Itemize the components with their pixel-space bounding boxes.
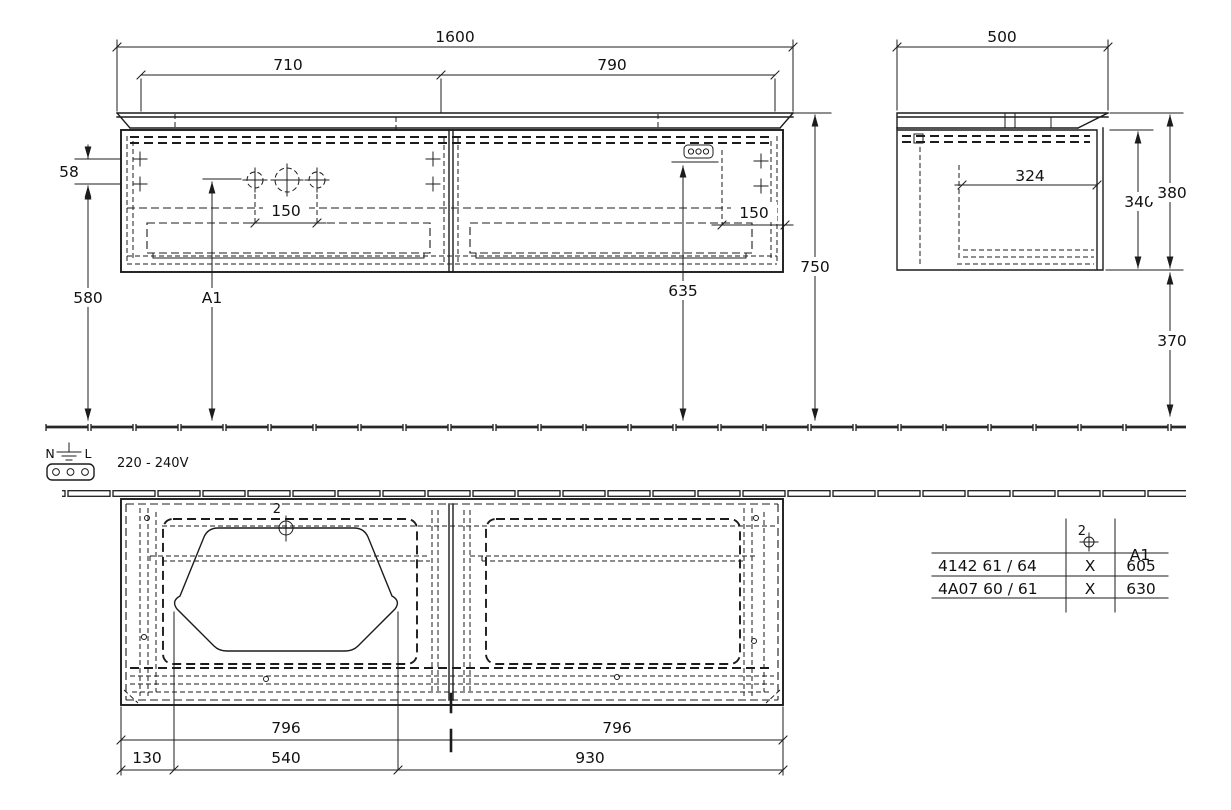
dim-hole-spacing-right: 150 — [739, 204, 769, 222]
vanity-technical-drawing: 1600 710 790 58 580 A1 635 750 15 — [0, 0, 1231, 810]
floor-line-lower — [62, 490, 1186, 497]
dim-edge-offset: 130 — [132, 749, 162, 767]
table-row: 4142 61 / 64 X 605 — [938, 557, 1156, 575]
dim-inner-depth: 324 — [1015, 167, 1045, 185]
dim-right-span: 930 — [575, 749, 605, 767]
dim-left-width: 796 — [271, 719, 301, 737]
floor-line-upper — [45, 424, 1186, 431]
side-view: 500 324 340 380 370 — [893, 28, 1194, 416]
plan-outline — [121, 499, 783, 705]
side-dimensions: 500 324 340 380 370 — [893, 28, 1194, 416]
plan-view: 2 — [121, 499, 783, 705]
socket-cutout — [684, 145, 722, 225]
plan-left-drawer — [163, 519, 417, 664]
technical-drawing-page: 1600 710 790 58 580 A1 635 750 15 — [0, 0, 1231, 810]
front-center-divider — [449, 130, 453, 272]
table-symbol-value: X — [1085, 557, 1096, 575]
plug-connector-icon — [47, 464, 94, 480]
plan-dimensions: 796 796 130 540 930 — [117, 612, 787, 775]
side-cabinet-body — [897, 128, 1103, 270]
dim-height-to-holes: 580 — [73, 289, 103, 307]
dim-floor-clearance: 370 — [1157, 332, 1187, 350]
spec-table: 2 A1 4142 61 / 64 X 605 4A07 60 / 61 X 6… — [932, 519, 1168, 612]
dim-basin-span: 540 — [271, 749, 301, 767]
electrical-connection: N L 220 - 240V — [45, 443, 188, 480]
dim-left-section: 710 — [273, 56, 303, 74]
dim-right-section: 790 — [597, 56, 627, 74]
side-countertop — [897, 113, 1108, 128]
front-left-drawer-handle — [147, 223, 430, 253]
plan-right-drawer — [486, 519, 740, 664]
earth-ground-icon — [57, 443, 81, 460]
dim-side-inset: 58 — [59, 163, 79, 181]
dim-socket-height: 635 — [668, 282, 698, 300]
label-drain: 2 — [273, 502, 281, 517]
dim-total-height: 380 — [1157, 184, 1187, 202]
table-header-symbol: 2 — [1078, 524, 1086, 539]
dim-overall-width: 1600 — [435, 28, 474, 46]
label-a1: A1 — [202, 289, 222, 307]
dim-right-width: 796 — [602, 719, 632, 737]
table-model: 4A07 60 / 61 — [938, 580, 1038, 598]
front-right-drawer-handle — [470, 223, 752, 253]
dim-overall-height: 750 — [800, 258, 830, 276]
table-a1-value: 605 — [1126, 557, 1156, 575]
label-neutral: N — [45, 446, 54, 461]
label-line: L — [85, 446, 92, 461]
floor-hatch-band-upper — [45, 424, 1186, 431]
label-voltage: 220 - 240V — [117, 456, 189, 471]
front-view — [117, 113, 793, 272]
front-countertop — [117, 113, 793, 130]
tap-hole-group — [243, 164, 329, 196]
table-row: 4A07 60 / 61 X 630 — [938, 580, 1156, 598]
basin-outline — [175, 528, 398, 651]
table-symbol-value: X — [1085, 580, 1096, 598]
dim-depth: 500 — [987, 28, 1017, 46]
dim-hole-spacing-left: 150 — [271, 202, 301, 220]
plan-center-divider — [449, 504, 453, 700]
floor-hatch-band-lower — [62, 490, 1186, 497]
table-a1-value: 630 — [1126, 580, 1156, 598]
front-mounting-crosses — [133, 152, 768, 193]
table-model: 4142 61 / 64 — [938, 557, 1037, 575]
